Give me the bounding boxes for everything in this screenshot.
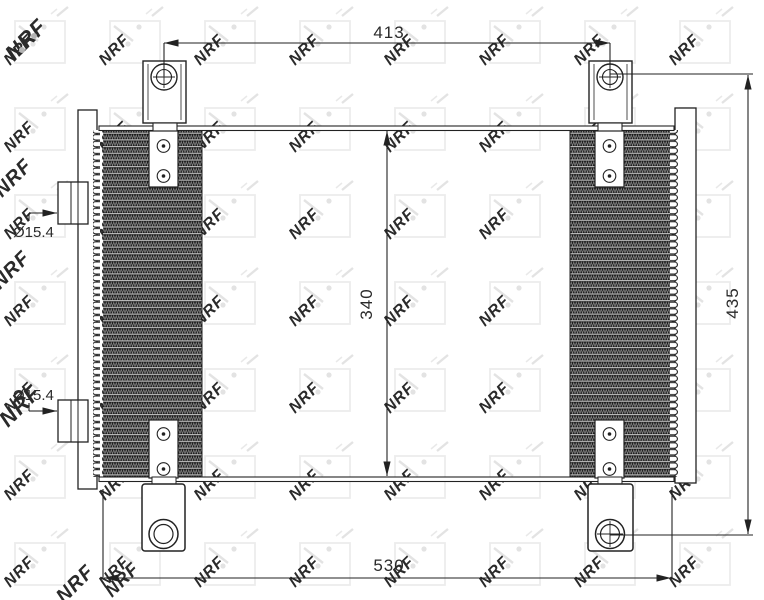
watermark-dot xyxy=(19,47,25,53)
dim-label-530: 530 xyxy=(373,556,404,575)
bottom-header xyxy=(99,477,674,482)
port-bottom xyxy=(58,400,88,442)
core-serrated-edge-left xyxy=(93,130,103,477)
dim-label-413: 413 xyxy=(373,23,404,42)
watermark-dot xyxy=(31,33,37,39)
right-side-plate xyxy=(675,108,696,483)
mount-foot xyxy=(588,484,633,551)
dim-label-340: 340 xyxy=(357,288,376,319)
condenser-technical-drawing: NRF NRF NRF NRF NRF NRF NRF xyxy=(0,0,764,600)
drawing-canvas: NRF NRF NRF NRF NRF NRF NRF xyxy=(0,0,764,600)
top-header xyxy=(99,126,674,131)
mount-foot xyxy=(142,484,185,551)
port-bottom-diameter-label: Ø15.4 xyxy=(13,387,54,404)
port-top xyxy=(58,182,88,224)
port-top-diameter-label: Ø15.4 xyxy=(13,224,54,241)
bracket-bottom-left xyxy=(142,420,185,551)
dim-label-435: 435 xyxy=(723,287,742,318)
